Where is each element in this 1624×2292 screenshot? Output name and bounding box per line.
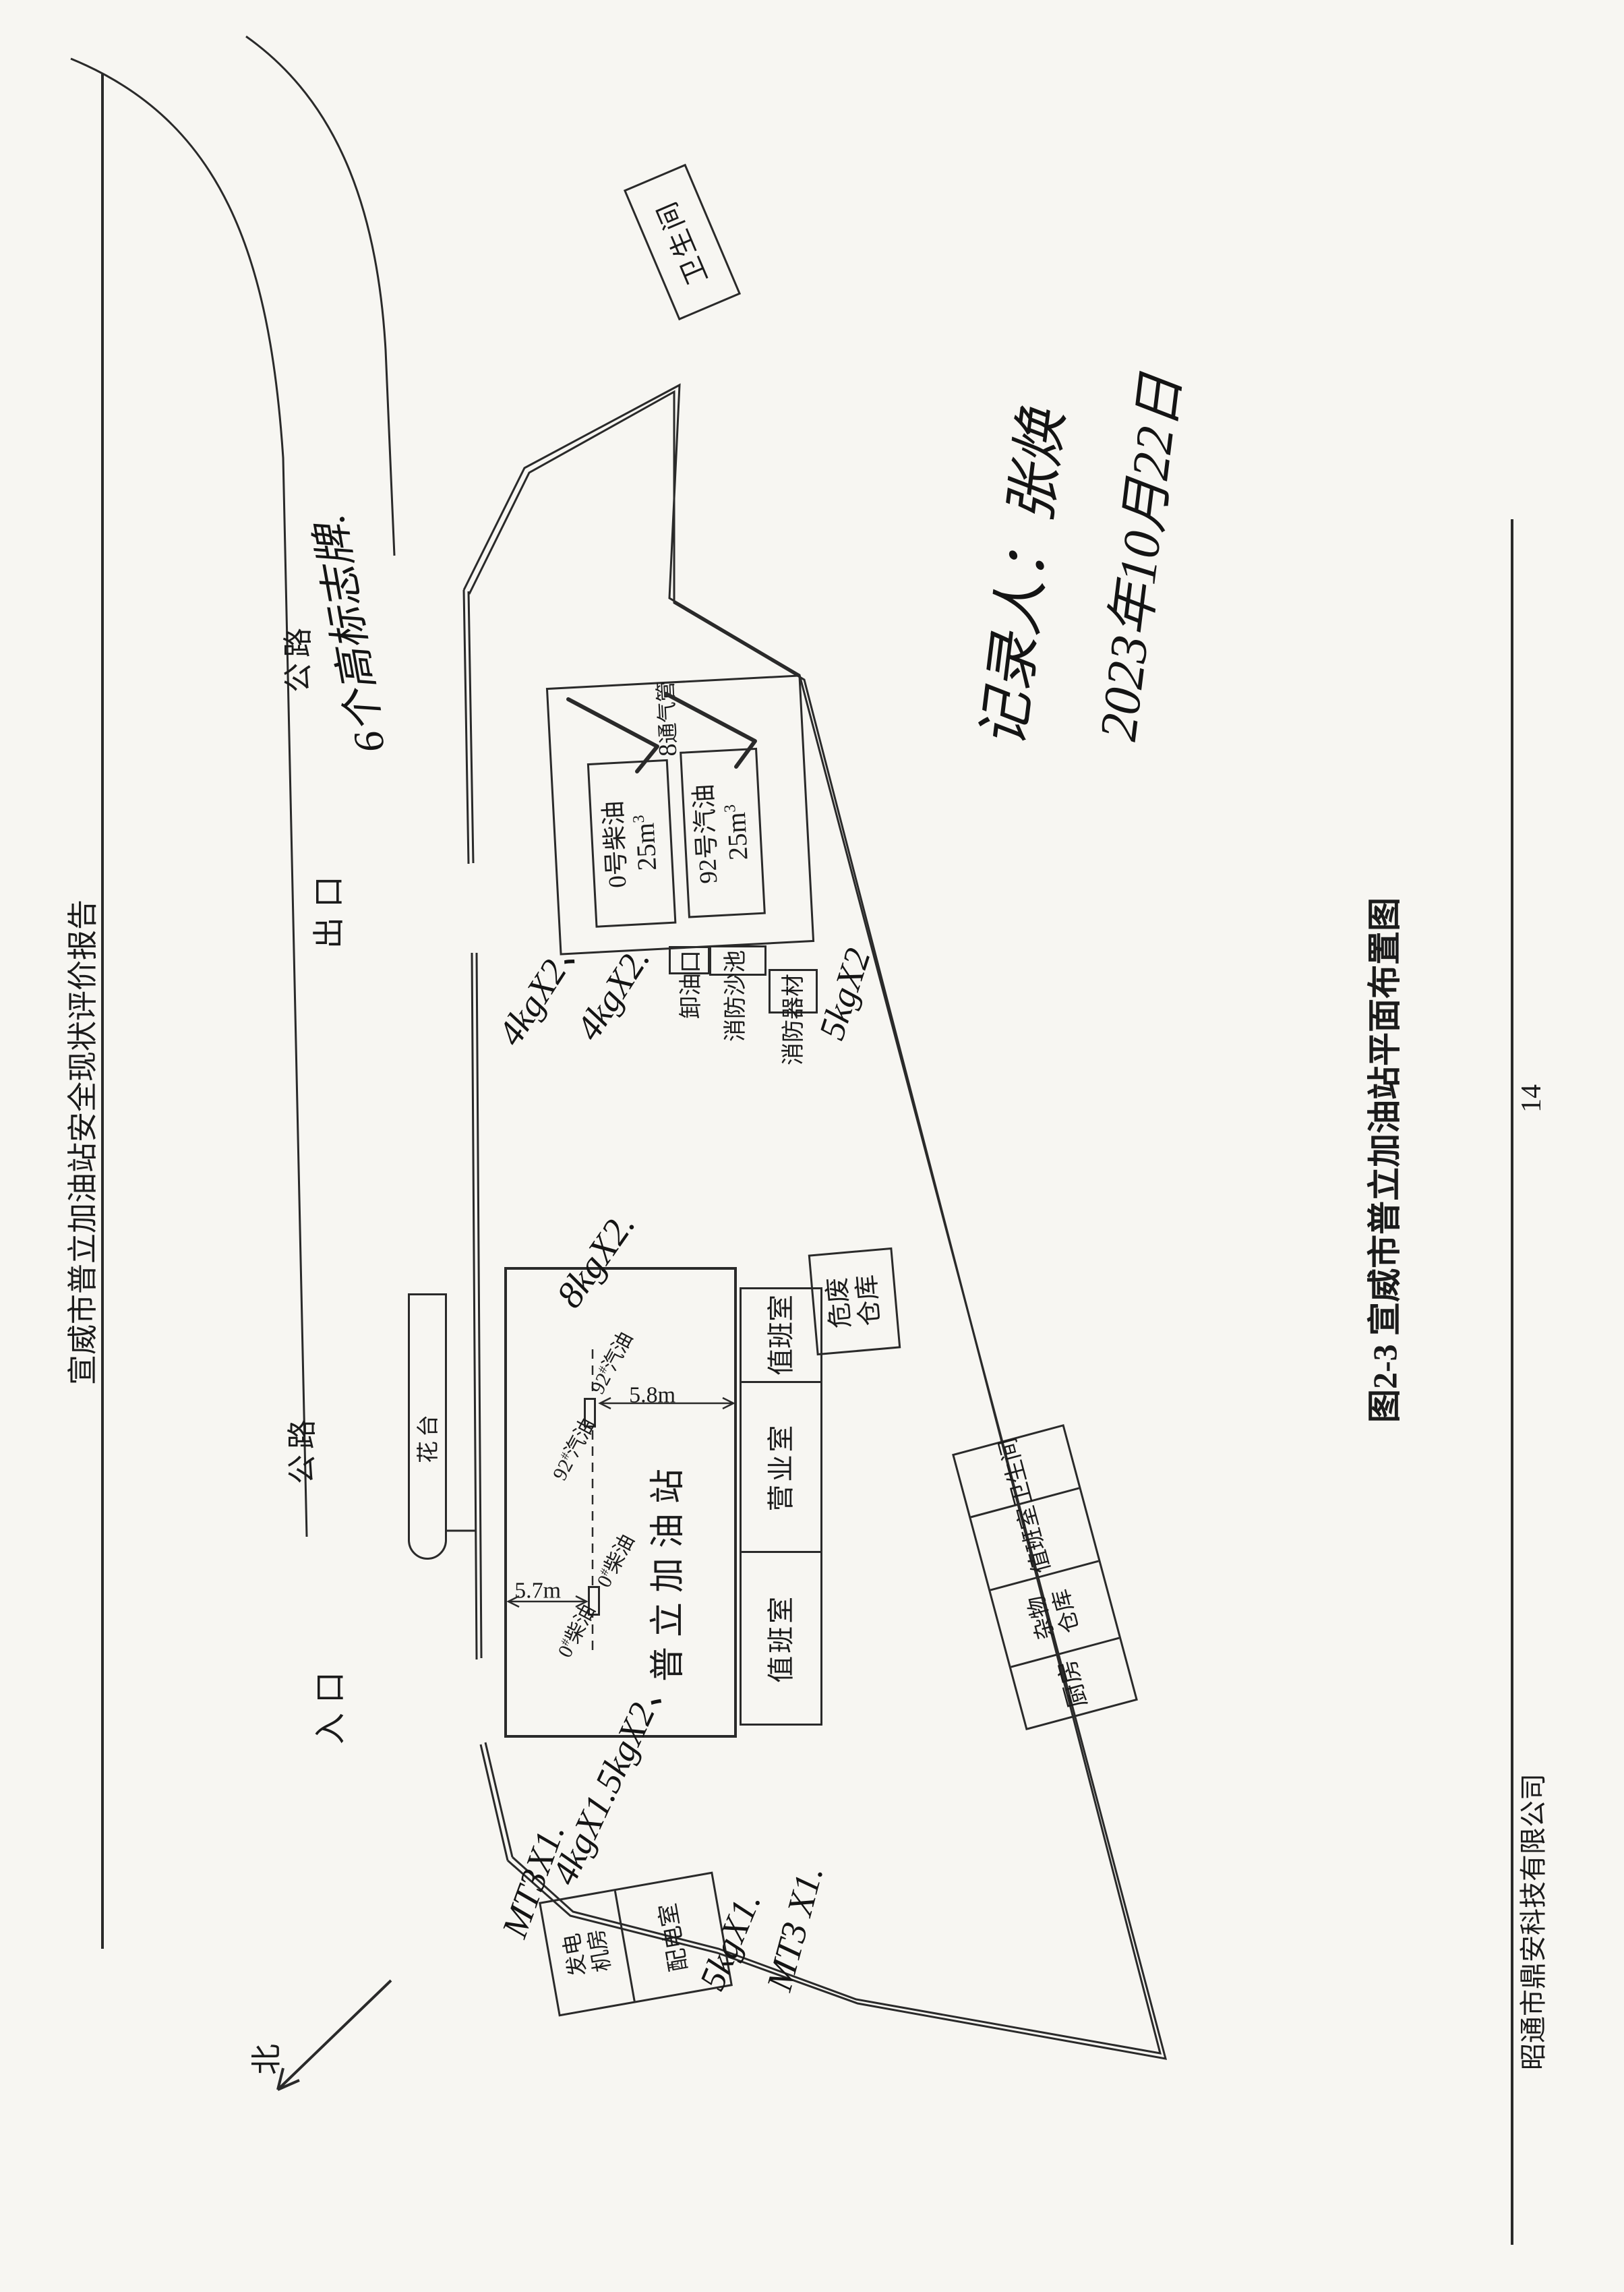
road-label-left: 公路 <box>286 1414 320 1484</box>
duty-room-left-label: 值班室 <box>766 1594 797 1683</box>
figure-caption: 图2-3 宣威市普立加油站平面布置图 <box>1366 898 1405 1423</box>
vent-symbol: 8 <box>653 743 682 757</box>
hazard-label-line1: 危废 <box>823 1276 857 1330</box>
unloading-port-label: 卸油口 <box>678 950 704 1045</box>
road-edge-inner <box>246 36 394 556</box>
scanned-report-page: { "page": { "header_title": "宣威市普立加油站安全现… <box>0 0 1624 2292</box>
duty-room-left: 值班室 <box>742 1553 820 1724</box>
footer-company: 昭通市鼎安科技有限公司 <box>1518 1773 1549 2070</box>
fire-sand-label: 消防沙池 <box>723 950 749 1058</box>
duty-room-right-label: 值班室 <box>766 1295 797 1376</box>
rotated-landscape-content: 宣威市普立加油站安全现状评价报告 图2-3 宣威市普立加油站平面布置图 14 昭… <box>0 0 1624 2292</box>
tank-enclosure: 0号柴油 25m3 92号汽油 25m3 8通气管 <box>546 674 814 955</box>
entrance-label: 入口 <box>313 1662 349 1744</box>
business-room-label: 营业室 <box>766 1423 797 1512</box>
fire-equipment-label: 消防器材 <box>781 974 807 1085</box>
kitchen-label: 厨房 <box>1054 1656 1093 1710</box>
station-name: 普立加油站 <box>649 1459 689 1682</box>
dimension-5-7m: 5.7m <box>508 1577 568 1604</box>
tank-92-name: 92号汽油 <box>690 783 724 884</box>
business-room: 营业室 <box>742 1383 820 1554</box>
south-duty-label: 值班室 <box>1013 1502 1056 1576</box>
tank-92-gasoline: 92号汽油 25m3 <box>680 748 766 918</box>
dimension-5-8m: 5.8m <box>622 1382 683 1408</box>
station-office-row: 值班室 营业室 值班室 <box>740 1287 822 1726</box>
vent-pipe-label: 8通气管 <box>651 680 684 757</box>
hazardous-waste-warehouse: 危废 仓库 <box>808 1247 901 1355</box>
distribution-label: 配电室 <box>655 1901 693 1973</box>
tank-92-capacity: 25m3 <box>720 803 754 860</box>
flower-bed-label: 花台 <box>417 1411 442 1463</box>
hazard-label-line2: 仓库 <box>852 1273 886 1327</box>
road-edge-outer <box>71 59 307 1537</box>
road-label-top: 公路 <box>282 622 316 693</box>
exit-label: 出口 <box>311 866 348 949</box>
tank-0-name: 0号柴油 <box>600 800 633 889</box>
tank-0-capacity: 25m3 <box>629 814 663 871</box>
south-toilet-label: 卫生间 <box>995 1435 1038 1508</box>
north-arrow <box>278 1980 391 2090</box>
page-number: 14 <box>1515 1084 1548 1113</box>
duty-room-right: 值班室 <box>742 1289 820 1383</box>
toilet-top-label: 卫生间 <box>651 195 714 289</box>
flower-bed: 花台 <box>408 1293 447 1560</box>
tank-0-diesel: 0号柴油 25m3 <box>587 759 677 928</box>
north-label: 北 <box>249 2044 285 2075</box>
header-title: 宣威市普立加油站安全现状评价报告 <box>66 900 101 1385</box>
